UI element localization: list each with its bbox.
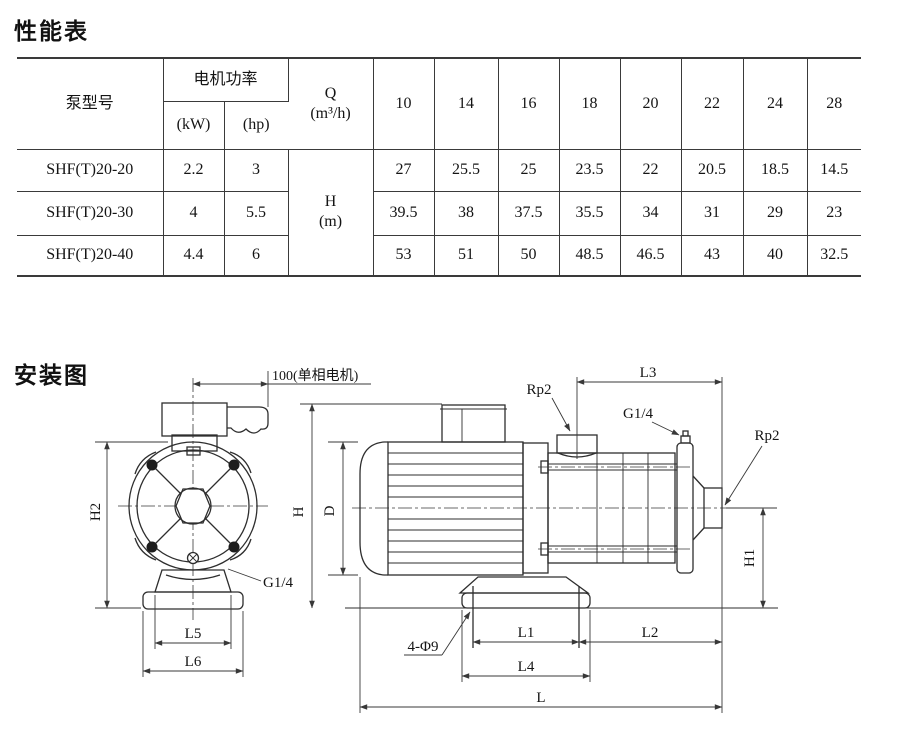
performance-table: 泵型号 电机功率 Q (m³/h) 10 14 16 18 20 22 24 2… bbox=[17, 57, 861, 277]
bolt bbox=[147, 542, 157, 552]
cell-head: 27 bbox=[373, 149, 434, 191]
vent-plug bbox=[681, 431, 690, 443]
cell-head: 43 bbox=[681, 235, 743, 276]
label-h2: H2 bbox=[88, 503, 104, 521]
support-bracket bbox=[460, 577, 588, 593]
cell-model: SHF(T)20-20 bbox=[17, 149, 163, 191]
label-g14-right: G1/4 bbox=[623, 406, 654, 422]
header-pump-model: 泵型号 bbox=[17, 58, 163, 149]
dimension-l4: L4 bbox=[462, 610, 590, 682]
cell-head: 40 bbox=[743, 235, 807, 276]
header-flow-value: 20 bbox=[620, 58, 681, 149]
header-flow-value: 24 bbox=[743, 58, 807, 149]
cell-head: 48.5 bbox=[559, 235, 620, 276]
terminal-box-side bbox=[442, 405, 505, 442]
cell-head: 53 bbox=[373, 235, 434, 276]
label-bolt-holes: 4-Φ9 bbox=[408, 639, 439, 655]
label-d: D bbox=[322, 505, 338, 516]
cell-head: 25.5 bbox=[434, 149, 498, 191]
dimension-d: D bbox=[322, 442, 358, 575]
label-g14-left: G1/4 bbox=[263, 575, 294, 591]
performance-table-title: 性能表 bbox=[14, 12, 89, 46]
cell-model: SHF(T)20-40 bbox=[17, 235, 163, 276]
header-flow-value: 16 bbox=[498, 58, 559, 149]
motor-body bbox=[388, 442, 523, 575]
dimension-l2: L2 bbox=[579, 625, 722, 642]
cell-head: 14.5 bbox=[807, 149, 861, 191]
bolt bbox=[229, 460, 239, 470]
leader-g14-left: G1/4 bbox=[228, 569, 294, 591]
cell-kw: 4 bbox=[163, 191, 224, 235]
cell-head: 22 bbox=[620, 149, 681, 191]
cell-head: 18.5 bbox=[743, 149, 807, 191]
pump-front-view bbox=[118, 378, 268, 620]
label-l4: L4 bbox=[518, 659, 535, 675]
cell-head: 35.5 bbox=[559, 191, 620, 235]
cell-kw: 4.4 bbox=[163, 235, 224, 276]
cell-head: 31 bbox=[681, 191, 743, 235]
dimension-l6: L6 bbox=[143, 611, 243, 677]
dimension-motor-width: 100(单相电机) bbox=[193, 368, 371, 407]
cell-head: 50 bbox=[498, 235, 559, 276]
label-l3: L3 bbox=[640, 365, 657, 381]
cell-hp: 6 bbox=[224, 235, 288, 276]
bolt bbox=[229, 542, 239, 552]
cell-head: 34 bbox=[620, 191, 681, 235]
catalog-page: 性能表 泵型号 电机功率 Q (m³/h) 10 14 16 18 20 22 … bbox=[0, 0, 900, 733]
label-l2: L2 bbox=[642, 625, 659, 641]
leader-bolt-holes: 4-Φ9 bbox=[404, 612, 470, 655]
cell-head: 32.5 bbox=[807, 235, 861, 276]
header-flow-value: 14 bbox=[434, 58, 498, 149]
cell-head: 37.5 bbox=[498, 191, 559, 235]
table-row: SHF(T)20-40 4.4 6 53 51 50 48.5 46.5 43 … bbox=[17, 235, 861, 276]
label-h1: H1 bbox=[742, 549, 758, 567]
header-hp: (hp) bbox=[224, 101, 288, 149]
leader-rp2-top: Rp2 bbox=[526, 382, 570, 431]
header-flow-value: 28 bbox=[807, 58, 861, 149]
cell-head: 39.5 bbox=[373, 191, 434, 235]
cell-head: 25 bbox=[498, 149, 559, 191]
cell-head: 23.5 bbox=[559, 149, 620, 191]
header-motor-power: 电机功率 bbox=[163, 58, 288, 101]
label-rp2-top: Rp2 bbox=[526, 382, 551, 398]
side-view-dimensions: H D L3 Rp2 G1/4 Rp bbox=[291, 365, 780, 713]
dimension-h1: H1 bbox=[726, 508, 777, 608]
label-l: L bbox=[536, 690, 545, 706]
cable-gland-spout bbox=[227, 407, 268, 433]
label-h: H bbox=[291, 506, 307, 517]
pump-side-view bbox=[345, 377, 778, 648]
cell-head: 51 bbox=[434, 235, 498, 276]
table-row: SHF(T)20-20 2.2 3 H (m) 27 25.5 25 23.5 … bbox=[17, 149, 861, 191]
dimension-l1: L1 bbox=[473, 625, 579, 642]
cell-head: 29 bbox=[743, 191, 807, 235]
dimension-h: H bbox=[291, 404, 442, 608]
label-l5: L5 bbox=[185, 626, 202, 642]
label-l6: L6 bbox=[185, 654, 202, 670]
terminal-box-front bbox=[162, 403, 227, 436]
cell-head-h: H (m) bbox=[288, 149, 373, 276]
header-kw: (kW) bbox=[163, 101, 224, 149]
cell-hp: 3 bbox=[224, 149, 288, 191]
header-flow-q: Q (m³/h) bbox=[288, 58, 373, 149]
label-l1: L1 bbox=[518, 625, 535, 641]
installation-diagram: 100(单相电机) H2 G1/4 L5 L bbox=[0, 340, 900, 733]
cell-head: 23 bbox=[807, 191, 861, 235]
drain-plug bbox=[188, 553, 199, 564]
leader-g14-right: G1/4 bbox=[623, 406, 679, 435]
suction-port-hex bbox=[176, 489, 210, 523]
table-row: SHF(T)20-30 4 5.5 39.5 38 37.5 35.5 34 3… bbox=[17, 191, 861, 235]
leader-rp2-right: Rp2 bbox=[725, 428, 780, 505]
cell-head: 46.5 bbox=[620, 235, 681, 276]
label-motor-dim: 100(单相电机) bbox=[272, 368, 359, 384]
cell-kw: 2.2 bbox=[163, 149, 224, 191]
mounting-foot bbox=[462, 593, 590, 608]
motor-end-cover bbox=[360, 442, 388, 575]
header-flow-value: 10 bbox=[373, 58, 434, 149]
cell-model: SHF(T)20-30 bbox=[17, 191, 163, 235]
label-rp2-right: Rp2 bbox=[754, 428, 779, 444]
cell-head: 38 bbox=[434, 191, 498, 235]
bolt bbox=[147, 460, 157, 470]
header-flow-value: 18 bbox=[559, 58, 620, 149]
header-flow-value: 22 bbox=[681, 58, 743, 149]
front-view-dimensions: 100(单相电机) H2 G1/4 L5 L bbox=[88, 368, 371, 677]
cell-head: 20.5 bbox=[681, 149, 743, 191]
cell-hp: 5.5 bbox=[224, 191, 288, 235]
